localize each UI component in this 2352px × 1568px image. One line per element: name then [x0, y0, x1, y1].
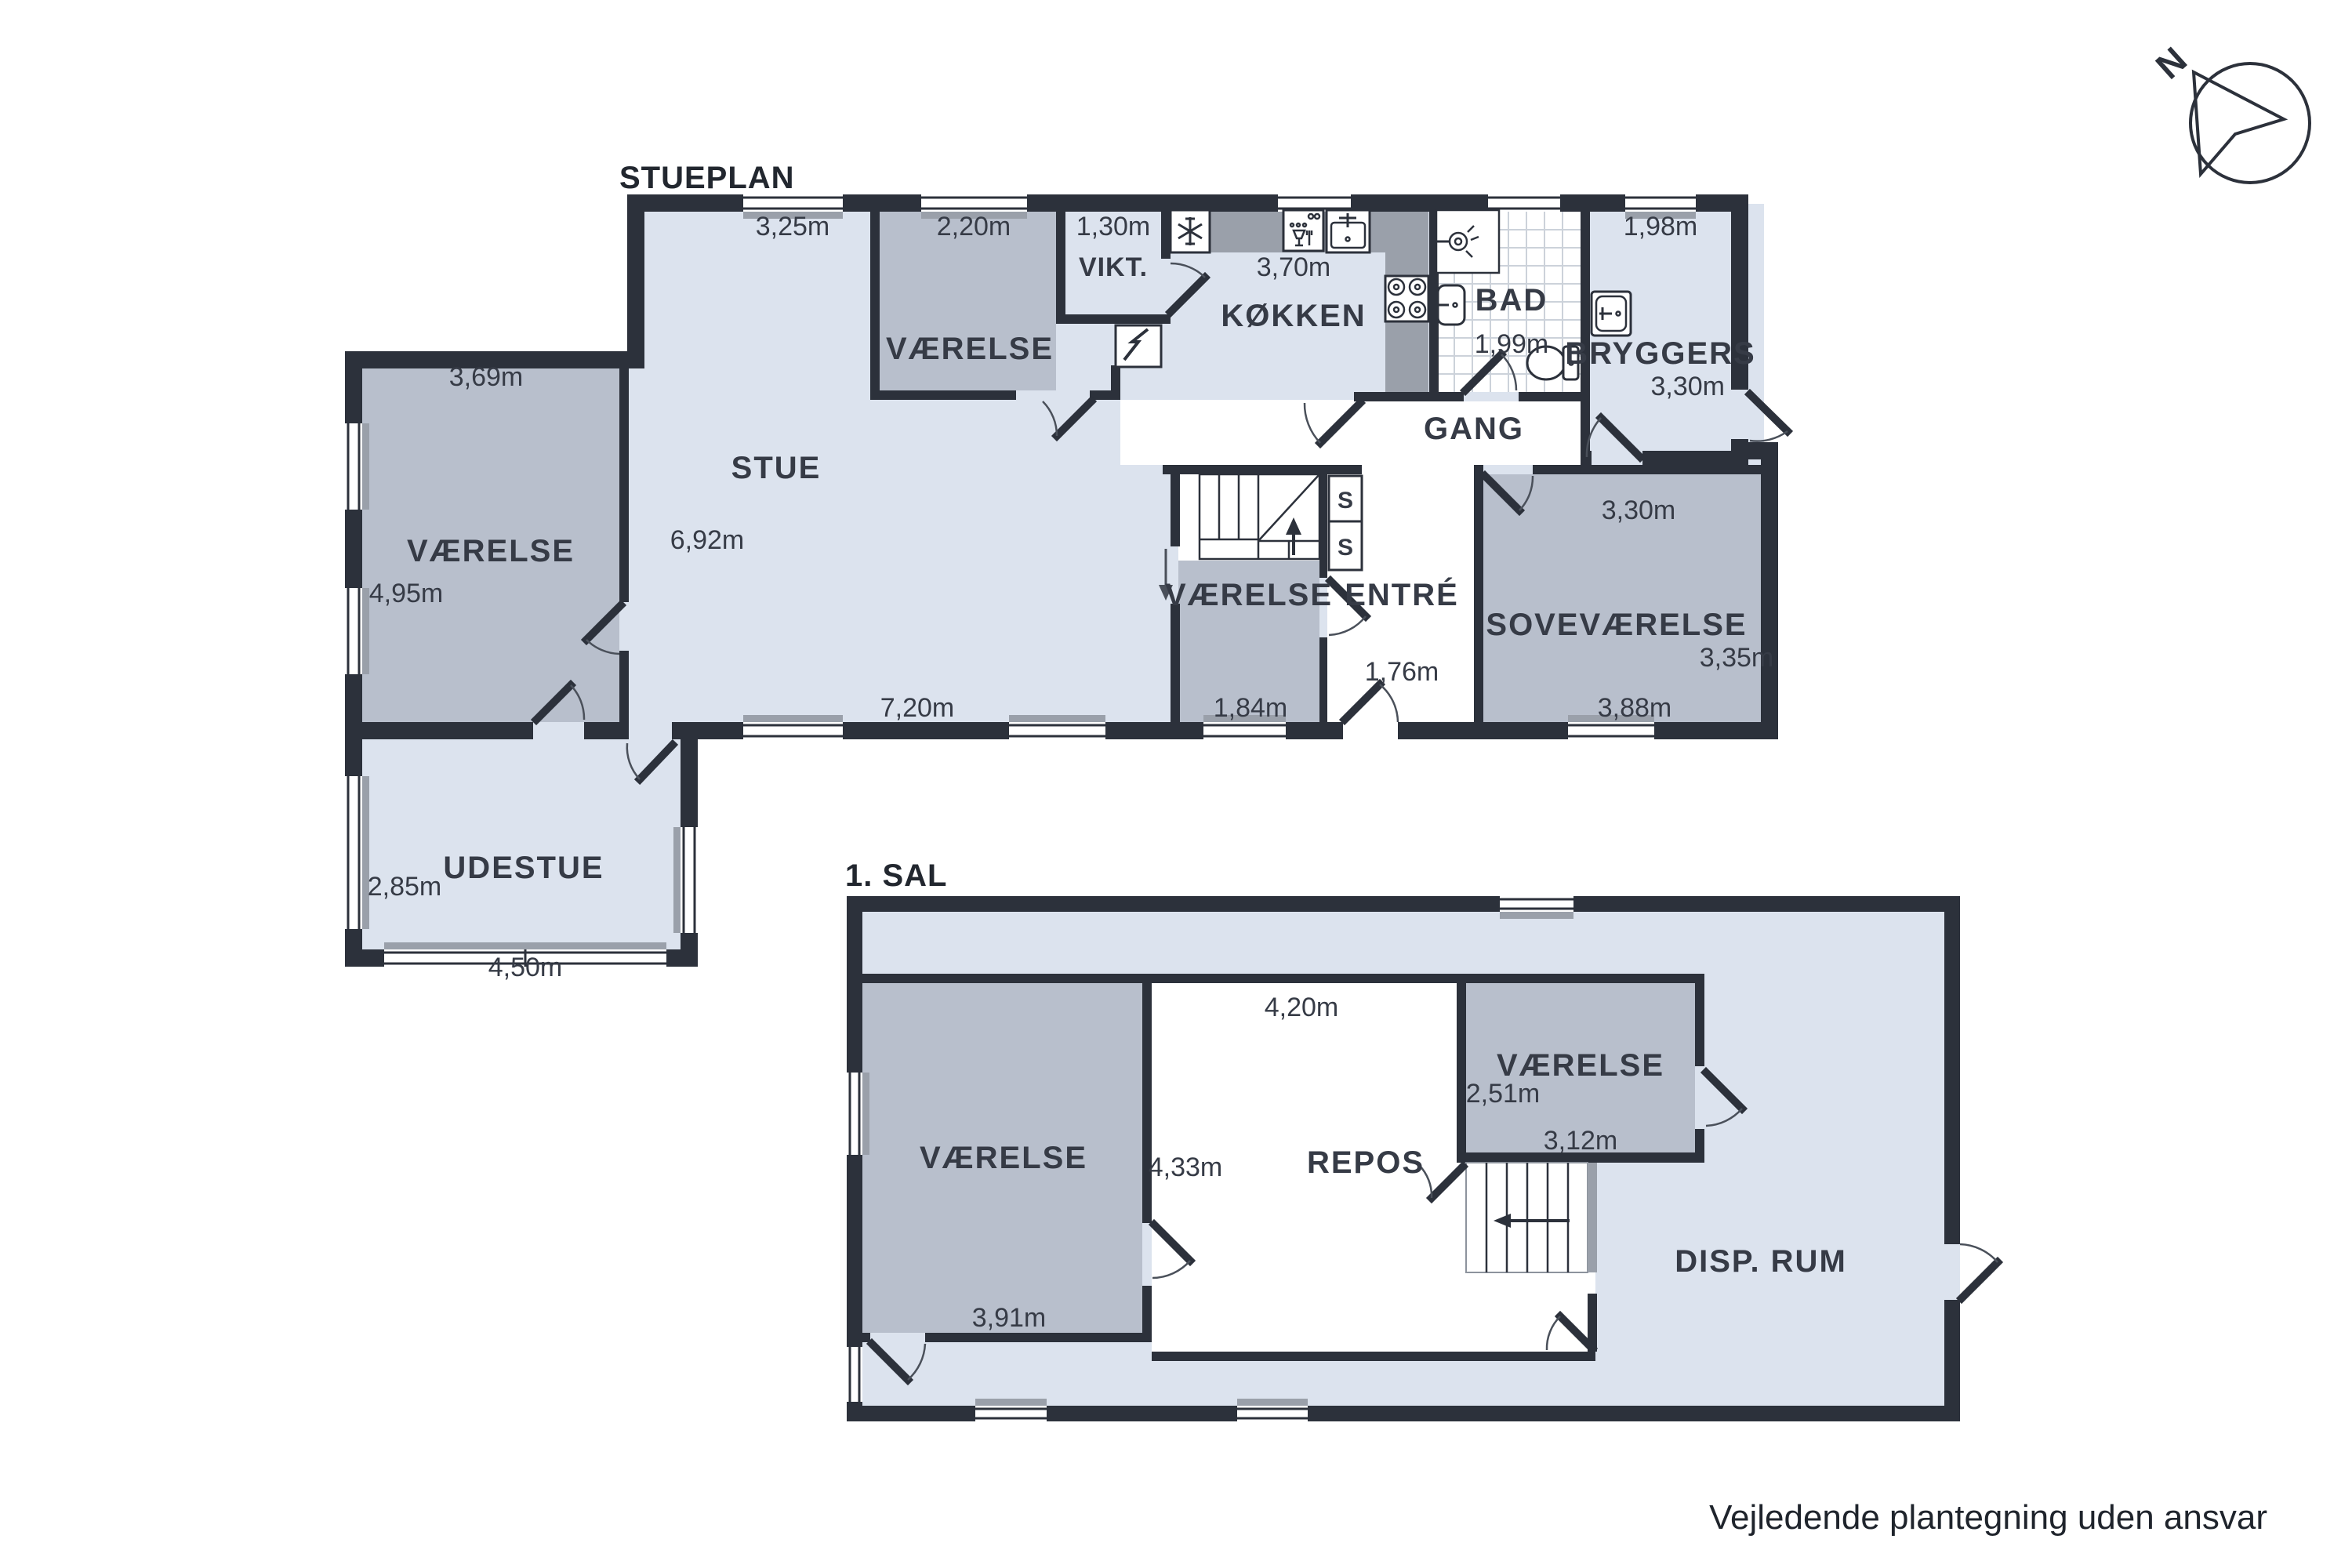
closet-label: S: [1338, 488, 1353, 514]
window: [847, 1073, 869, 1155]
room-stue: STUE: [731, 451, 822, 485]
dim-vaerelse-right-side: 2,51m: [1466, 1079, 1541, 1109]
dim-udestue-bottom: 4,50m: [488, 953, 563, 982]
room-gang: GANG: [1424, 412, 1524, 446]
window: [345, 588, 369, 674]
window: [743, 715, 843, 739]
ground-floor: S S: [345, 161, 1788, 982]
stove-icon: [1385, 276, 1428, 321]
staircase-first: [1466, 1163, 1597, 1272]
room-vaerelse-left: VÆRELSE: [407, 534, 575, 568]
dim-sovevaerelse-bottom: 3,88m: [1598, 693, 1672, 723]
dim-repos-top: 4,20m: [1265, 993, 1339, 1022]
door-gap: [629, 722, 672, 739]
room-vaerelse-right-first: VÆRELSE: [1497, 1048, 1664, 1083]
floorplan-page: S S: [0, 0, 2352, 1568]
dim-sovevaerelse-side: 3,35m: [1700, 643, 1774, 673]
chimney-icon: [1116, 325, 1161, 367]
door-gap: [1731, 390, 1748, 439]
dim-bad: 1,99m: [1475, 329, 1549, 359]
room-sovevaerelse: SOVEVÆRELSE: [1486, 608, 1747, 642]
closet-label: S: [1338, 535, 1353, 561]
window: [1488, 194, 1560, 212]
dishwasher-icon: [1283, 210, 1323, 251]
dim-vaerelse-mid: 1,84m: [1214, 693, 1288, 723]
room-vikt: VIKT.: [1079, 252, 1148, 282]
room-entre: ENTRÉ: [1345, 577, 1459, 612]
room-disp-rum: DISP. RUM: [1675, 1244, 1847, 1279]
laundry-sink-icon: [1592, 292, 1631, 336]
dim-vaerelse-left-side: 4,95m: [369, 579, 444, 608]
kitchen-sink-icon: [1327, 210, 1370, 252]
bath-sink-icon: [1438, 285, 1465, 325]
room-kokken: KØKKEN: [1221, 299, 1366, 333]
door-leaf: [1962, 1262, 1998, 1298]
shower-icon: [1436, 210, 1499, 273]
door-gap: [533, 722, 584, 739]
compass: N: [2148, 39, 2310, 183]
dim-vikt: 1,30m: [1076, 212, 1151, 241]
first-floor: 1. SAL 4,20m VÆRELSE 3,91m 4,33m REPOS V…: [845, 858, 1998, 1421]
window: [1237, 1399, 1308, 1421]
window: [673, 827, 698, 933]
dim-vaerelse-left-first: 3,91m: [972, 1303, 1047, 1333]
floorplan-drawing: S S: [0, 0, 2352, 1568]
window: [975, 1399, 1047, 1421]
dim-udestue-side: 2,85m: [368, 872, 442, 902]
compass-needle-icon: [2194, 72, 2284, 174]
dim-sovevaerelse-top: 3,30m: [1602, 495, 1676, 525]
dim-repos-left: 4,33m: [1149, 1152, 1223, 1182]
room-vaerelse-left-first: VÆRELSE: [920, 1141, 1087, 1175]
dim-bryggers-side: 3,30m: [1651, 372, 1726, 401]
dim-vaerelse-right-bottom: 3,12m: [1544, 1126, 1618, 1156]
dim-entre: 1,76m: [1365, 657, 1439, 687]
room-bad: BAD: [1475, 283, 1548, 318]
fridge-icon: [1171, 210, 1210, 252]
window: [1500, 896, 1573, 919]
dim-stue-top: 3,25m: [756, 212, 830, 241]
room-vaerelse-mid: VÆRELSE: [1165, 578, 1333, 612]
closets: S S: [1329, 476, 1362, 570]
disclaimer-text: Vejledende plantegning uden ansvar: [1709, 1498, 2267, 1537]
room-udestue: UDESTUE: [443, 851, 604, 885]
dim-vaerelse-left-top: 3,69m: [449, 362, 524, 392]
room-vaerelse-top: VÆRELSE: [886, 332, 1054, 366]
window: [1009, 715, 1105, 739]
ground-title: STUEPLAN: [619, 161, 795, 195]
room-repos: REPOS: [1307, 1145, 1425, 1180]
compass-north-label: N: [2148, 39, 2194, 87]
door-gap: [1944, 1244, 1960, 1300]
window: [345, 776, 369, 929]
room-bryggers: BRYGGERS: [1565, 336, 1755, 371]
dim-vaerelse-top: 2,20m: [937, 212, 1011, 241]
window: [345, 423, 369, 510]
door-gap: [1343, 722, 1398, 739]
dim-stue-left: 6,92m: [670, 525, 745, 555]
window: [847, 1347, 862, 1402]
first-title: 1. SAL: [845, 858, 947, 893]
dim-stue-bottom: 7,20m: [880, 693, 955, 723]
dim-kokken: 3,70m: [1257, 252, 1331, 282]
door-arc: [1960, 1244, 1998, 1262]
dim-bryggers-top: 1,98m: [1624, 212, 1698, 241]
